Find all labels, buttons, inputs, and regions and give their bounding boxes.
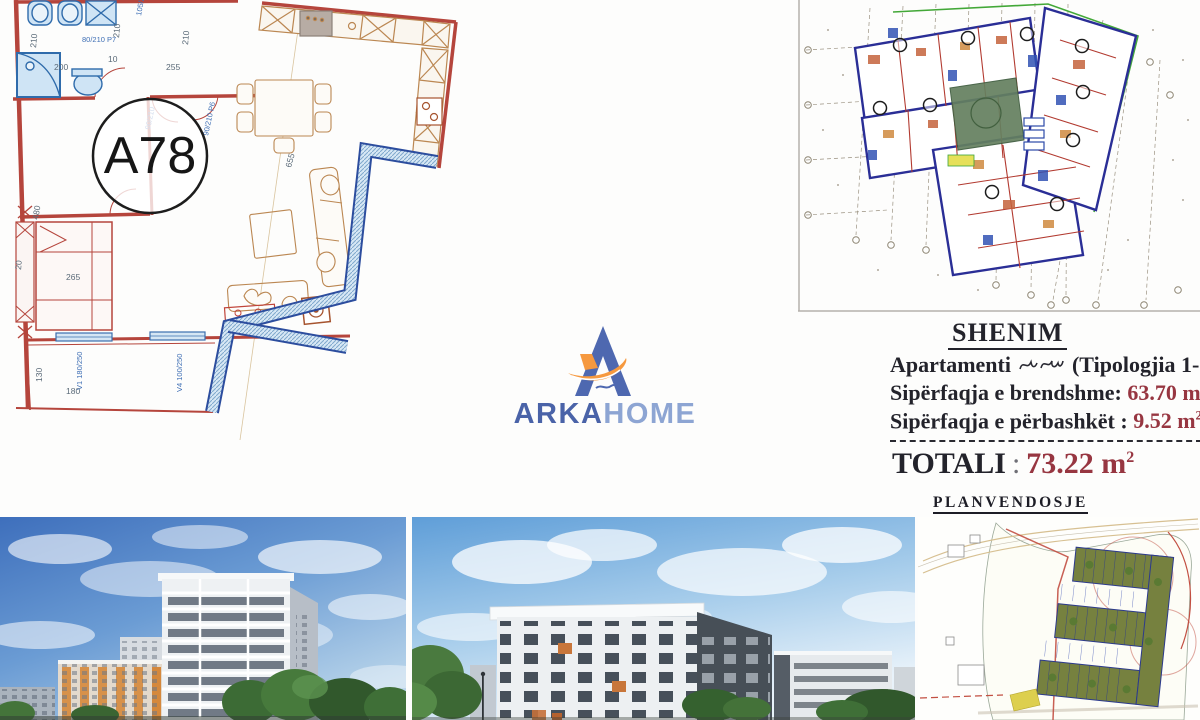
svg-text:210: 210 <box>28 33 39 48</box>
svg-text:265: 265 <box>66 272 80 282</box>
svg-text:130: 130 <box>34 368 44 382</box>
shenim-line1-label: Apartamenti <box>890 352 1011 377</box>
logo-wordmark: ARKAHOME <box>505 398 705 431</box>
stair-core <box>1024 118 1044 150</box>
totali-label: TOTALI <box>892 447 1006 480</box>
living-room-furniture <box>227 167 351 313</box>
svg-text:80/210 P7: 80/210 P7 <box>82 35 116 44</box>
svg-text:90/210 P6: 90/210 P6 <box>201 101 217 136</box>
unit-label: A78 <box>104 127 197 185</box>
courtyard <box>950 78 1024 150</box>
svg-text:210: 210 <box>180 30 191 45</box>
arka-home-logo-icon <box>558 324 648 400</box>
render-photo-2 <box>412 517 915 720</box>
shenim-line1-suffix: (Tipologjia 1- <box>1072 352 1199 377</box>
walls <box>13 0 456 412</box>
svg-text:V1 180/250: V1 180/250 <box>75 352 84 390</box>
shenim-line3-value: 9.52 m2 <box>1133 408 1200 433</box>
shenim-line2-value: 63.70 m <box>1127 380 1200 405</box>
site-plan-title: PLANVENDOSJE <box>933 494 1088 514</box>
site-plan-map <box>918 517 1200 720</box>
shenim-line3-label: Sipërfaqja e përbashkët : <box>890 408 1128 433</box>
totali-line: TOTALI:73.22 m2 <box>892 447 1134 481</box>
shenim-line-3: Sipërfaqja e përbashkët : 9.52 m2 <box>890 408 1200 434</box>
shenim-line2-label: Sipërfaqja e brendshme: <box>890 380 1122 405</box>
building-floorplan <box>798 0 1200 312</box>
totali-value: 73.22 m2 <box>1026 447 1134 480</box>
brochure-page: { "brand": { "wordmark_primary": "ARKA",… <box>0 0 1200 720</box>
svg-text:200: 200 <box>54 62 68 72</box>
svg-text:255: 255 <box>166 62 180 72</box>
unit-badge: A78 <box>93 99 207 213</box>
shenim-line-1: Apartamenti (Tipologjia 1- <box>890 352 1199 378</box>
handwritten-apartment-number-icon <box>1018 355 1064 375</box>
apartment-floorplan-a78: 210 210 210 200 10 255 655 265 480 20 13… <box>0 0 470 445</box>
bedroom-furniture <box>16 206 112 338</box>
plan-label-box <box>948 155 974 166</box>
svg-text:10: 10 <box>108 54 118 64</box>
svg-text:655: 655 <box>283 152 296 169</box>
render-photo-1 <box>0 517 406 720</box>
logo-wordmark-secondary: HOME <box>603 398 696 430</box>
dining-table <box>237 80 331 153</box>
bathroom-fixtures <box>17 1 116 97</box>
shenim-title: SHENIM <box>948 318 1067 350</box>
logo-wordmark-primary: ARKA <box>514 398 604 430</box>
shenim-line-2: Sipërfaqja e brendshme: 63.70 m <box>890 380 1200 406</box>
ground <box>0 716 406 720</box>
shenim-divider <box>890 440 1200 442</box>
svg-text:V4 100/250: V4 100/250 <box>175 354 184 392</box>
svg-text:20: 20 <box>13 260 24 271</box>
